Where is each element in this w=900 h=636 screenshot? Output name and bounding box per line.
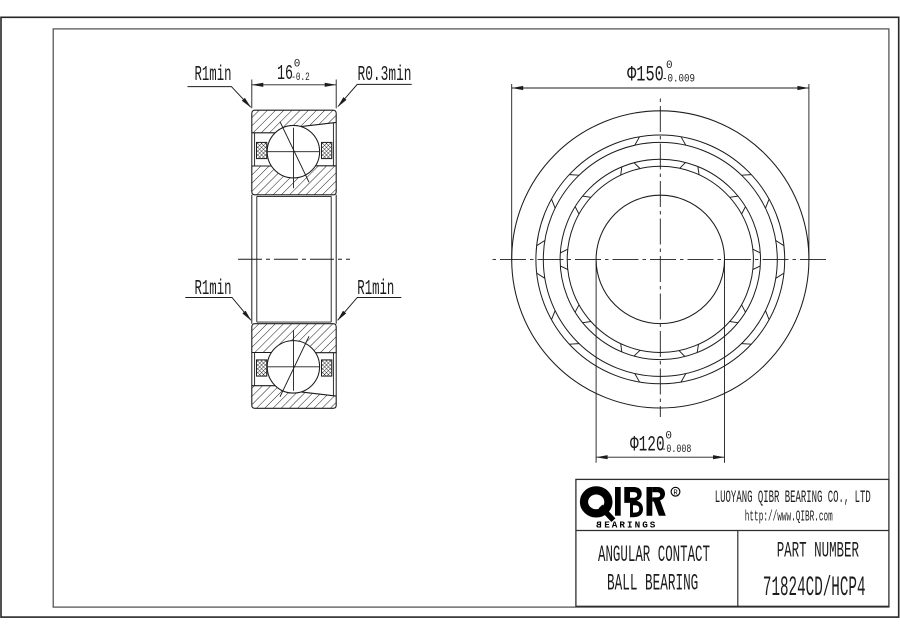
svg-text:LUOYANG QIBR BEARING CO., LTD: LUOYANG QIBR BEARING CO., LTD	[715, 488, 871, 508]
svg-text:R1min: R1min	[195, 64, 232, 87]
svg-text:0: 0	[294, 58, 301, 70]
svg-text:ANGULAR CONTACT: ANGULAR CONTACT	[598, 542, 710, 569]
svg-text:http://www.QIBR.com: http://www.QIBR.com	[745, 509, 833, 526]
svg-text:71824CD/HCP4: 71824CD/HCP4	[763, 573, 866, 604]
svg-text:0: 0	[666, 60, 673, 72]
svg-text:R0.3min: R0.3min	[358, 64, 412, 87]
svg-text:-0.2: -0.2	[291, 72, 309, 84]
svg-text:0: 0	[665, 430, 672, 442]
svg-text:B: B	[596, 519, 602, 530]
svg-text:PART NUMBER: PART NUMBER	[777, 539, 859, 564]
svg-text:-0.009: -0.009	[662, 74, 695, 86]
svg-text:R: R	[673, 490, 678, 498]
svg-text:BALL BEARING: BALL BEARING	[607, 570, 698, 596]
svg-text:Φ120: Φ120	[630, 432, 665, 457]
svg-text:-0.008: -0.008	[661, 444, 691, 456]
svg-text:Φ150: Φ150	[627, 63, 664, 88]
